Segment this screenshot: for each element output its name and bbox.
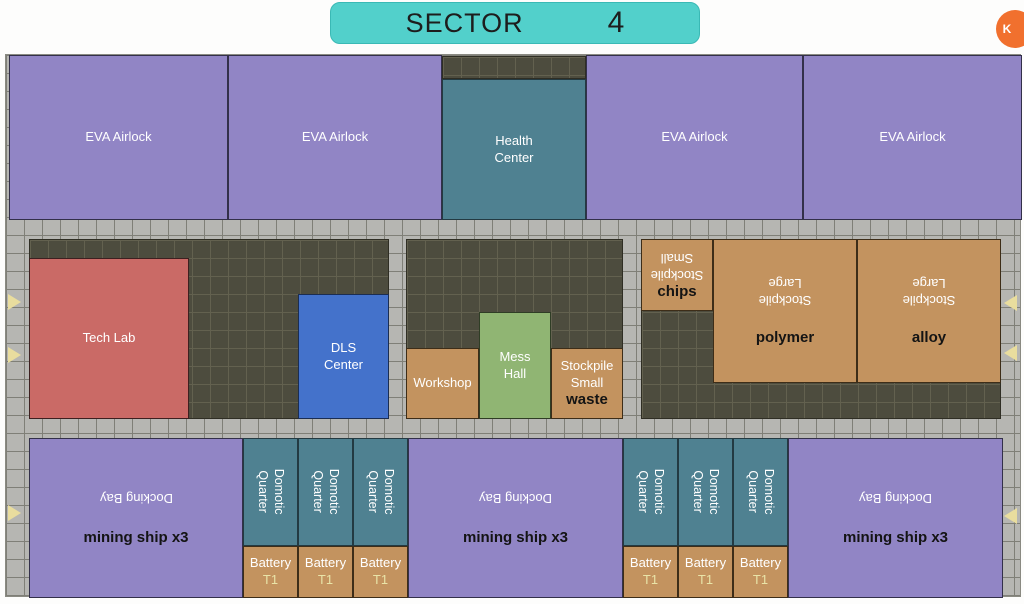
battery-tier: T1 [373, 572, 388, 589]
room-battery-3[interactable]: Battery T1 [353, 546, 408, 598]
room-stockpile-large-alloy[interactable]: Stockpile Large alloy [857, 239, 1001, 383]
room-docking-bay-3[interactable]: Docking Bay mining ship x3 [788, 438, 1003, 598]
battery-name: Battery [305, 555, 346, 572]
battery-name: Battery [360, 555, 401, 572]
resource-label: alloy [912, 328, 946, 348]
room-tech-lab[interactable]: Tech Lab [29, 258, 189, 419]
room-dls-center[interactable]: DLS Center [298, 294, 389, 419]
room-label: Workshop [413, 375, 471, 392]
room-label: Mess Hall [488, 349, 542, 383]
room-label: Domotic Quarter [635, 466, 666, 519]
room-domotic-quarter-4[interactable]: Domotic Quarter [623, 438, 678, 546]
sector-map: EVA Airlock EVA Airlock Health Center EV… [5, 54, 1021, 597]
room-label: Stockpile Large [753, 274, 817, 308]
sector-number: 4 [608, 6, 625, 40]
battery-tier: T1 [753, 572, 768, 589]
room-workshop[interactable]: Workshop [406, 348, 479, 419]
room-eva-airlock-3[interactable]: EVA Airlock [586, 55, 803, 220]
room-label: EVA Airlock [85, 129, 151, 146]
room-health-center[interactable]: Health Center [442, 79, 586, 220]
connector-arrow-left-icon[interactable] [8, 505, 21, 521]
connector-arrow-right-icon[interactable] [1004, 508, 1017, 524]
room-label: EVA Airlock [879, 129, 945, 146]
room-label: DLS Center [317, 340, 371, 374]
cargo-label: mining ship x3 [843, 528, 948, 548]
room-stockpile-small-waste[interactable]: Stockpile Small waste [551, 348, 623, 419]
room-label: Domotic Quarter [365, 466, 396, 519]
room-domotic-quarter-3[interactable]: Domotic Quarter [353, 438, 408, 546]
connector-arrow-left-icon[interactable] [8, 294, 21, 310]
room-label: Domotic Quarter [255, 466, 286, 519]
room-label: Docking Bay [479, 489, 552, 506]
battery-tier: T1 [263, 572, 278, 589]
sector-header: SECTOR 4 [330, 2, 700, 44]
room-label: Health Center [487, 133, 541, 167]
battery-name: Battery [740, 555, 781, 572]
room-mess-hall[interactable]: Mess Hall [479, 312, 551, 419]
room-label: Tech Lab [83, 330, 136, 347]
resource-label: waste [566, 390, 608, 410]
room-stockpile-large-polymer[interactable]: Stockpile Large polymer [713, 239, 857, 383]
room-docking-bay-2[interactable]: Docking Bay mining ship x3 [408, 438, 623, 598]
room-battery-5[interactable]: Battery T1 [678, 546, 733, 598]
cargo-label: mining ship x3 [83, 528, 188, 548]
connector-arrow-right-icon[interactable] [1004, 345, 1017, 361]
room-label: EVA Airlock [302, 129, 368, 146]
room-label: EVA Airlock [661, 129, 727, 146]
room-battery-6[interactable]: Battery T1 [733, 546, 788, 598]
room-domotic-quarter-6[interactable]: Domotic Quarter [733, 438, 788, 546]
room-label: Domotic Quarter [310, 466, 341, 519]
room-domotic-quarter-5[interactable]: Domotic Quarter [678, 438, 733, 546]
room-docking-bay-1[interactable]: Docking Bay mining ship x3 [29, 438, 243, 598]
battery-tier: T1 [698, 572, 713, 589]
room-label: Docking Bay [100, 489, 173, 506]
hotkey-label: K [1003, 22, 1012, 36]
room-label: Domotic Quarter [690, 466, 721, 519]
room-label: Stockpile Small [645, 249, 709, 283]
connector-arrow-left-icon[interactable] [8, 347, 21, 363]
hotkey-button[interactable]: K [996, 10, 1024, 48]
cargo-label: mining ship x3 [463, 528, 568, 548]
resource-label: polymer [756, 328, 814, 348]
room-battery-2[interactable]: Battery T1 [298, 546, 353, 598]
room-battery-4[interactable]: Battery T1 [623, 546, 678, 598]
battery-name: Battery [630, 555, 671, 572]
room-label: Docking Bay [859, 489, 932, 506]
room-domotic-quarter-2[interactable]: Domotic Quarter [298, 438, 353, 546]
sector-map-screen: SECTOR 4 K EVA Airlock EVA Airlock Healt… [0, 0, 1024, 604]
room-label: Stockpile Small [555, 358, 619, 392]
battery-name: Battery [250, 555, 291, 572]
battery-tier: T1 [318, 572, 333, 589]
room-eva-airlock-4[interactable]: EVA Airlock [803, 55, 1022, 220]
sector-title: SECTOR [406, 8, 524, 39]
battery-name: Battery [685, 555, 726, 572]
room-stockpile-small-chips[interactable]: Stockpile Small chips [641, 239, 713, 311]
room-label: Domotic Quarter [745, 466, 776, 519]
room-eva-airlock-1[interactable]: EVA Airlock [9, 55, 228, 220]
room-eva-airlock-2[interactable]: EVA Airlock [228, 55, 442, 220]
battery-tier: T1 [643, 572, 658, 589]
room-domotic-quarter-1[interactable]: Domotic Quarter [243, 438, 298, 546]
resource-label: chips [657, 282, 696, 302]
room-label: Stockpile Large [897, 274, 961, 308]
corridor-above-health-center [442, 56, 586, 79]
connector-arrow-right-icon[interactable] [1004, 295, 1017, 311]
room-battery-1[interactable]: Battery T1 [243, 546, 298, 598]
